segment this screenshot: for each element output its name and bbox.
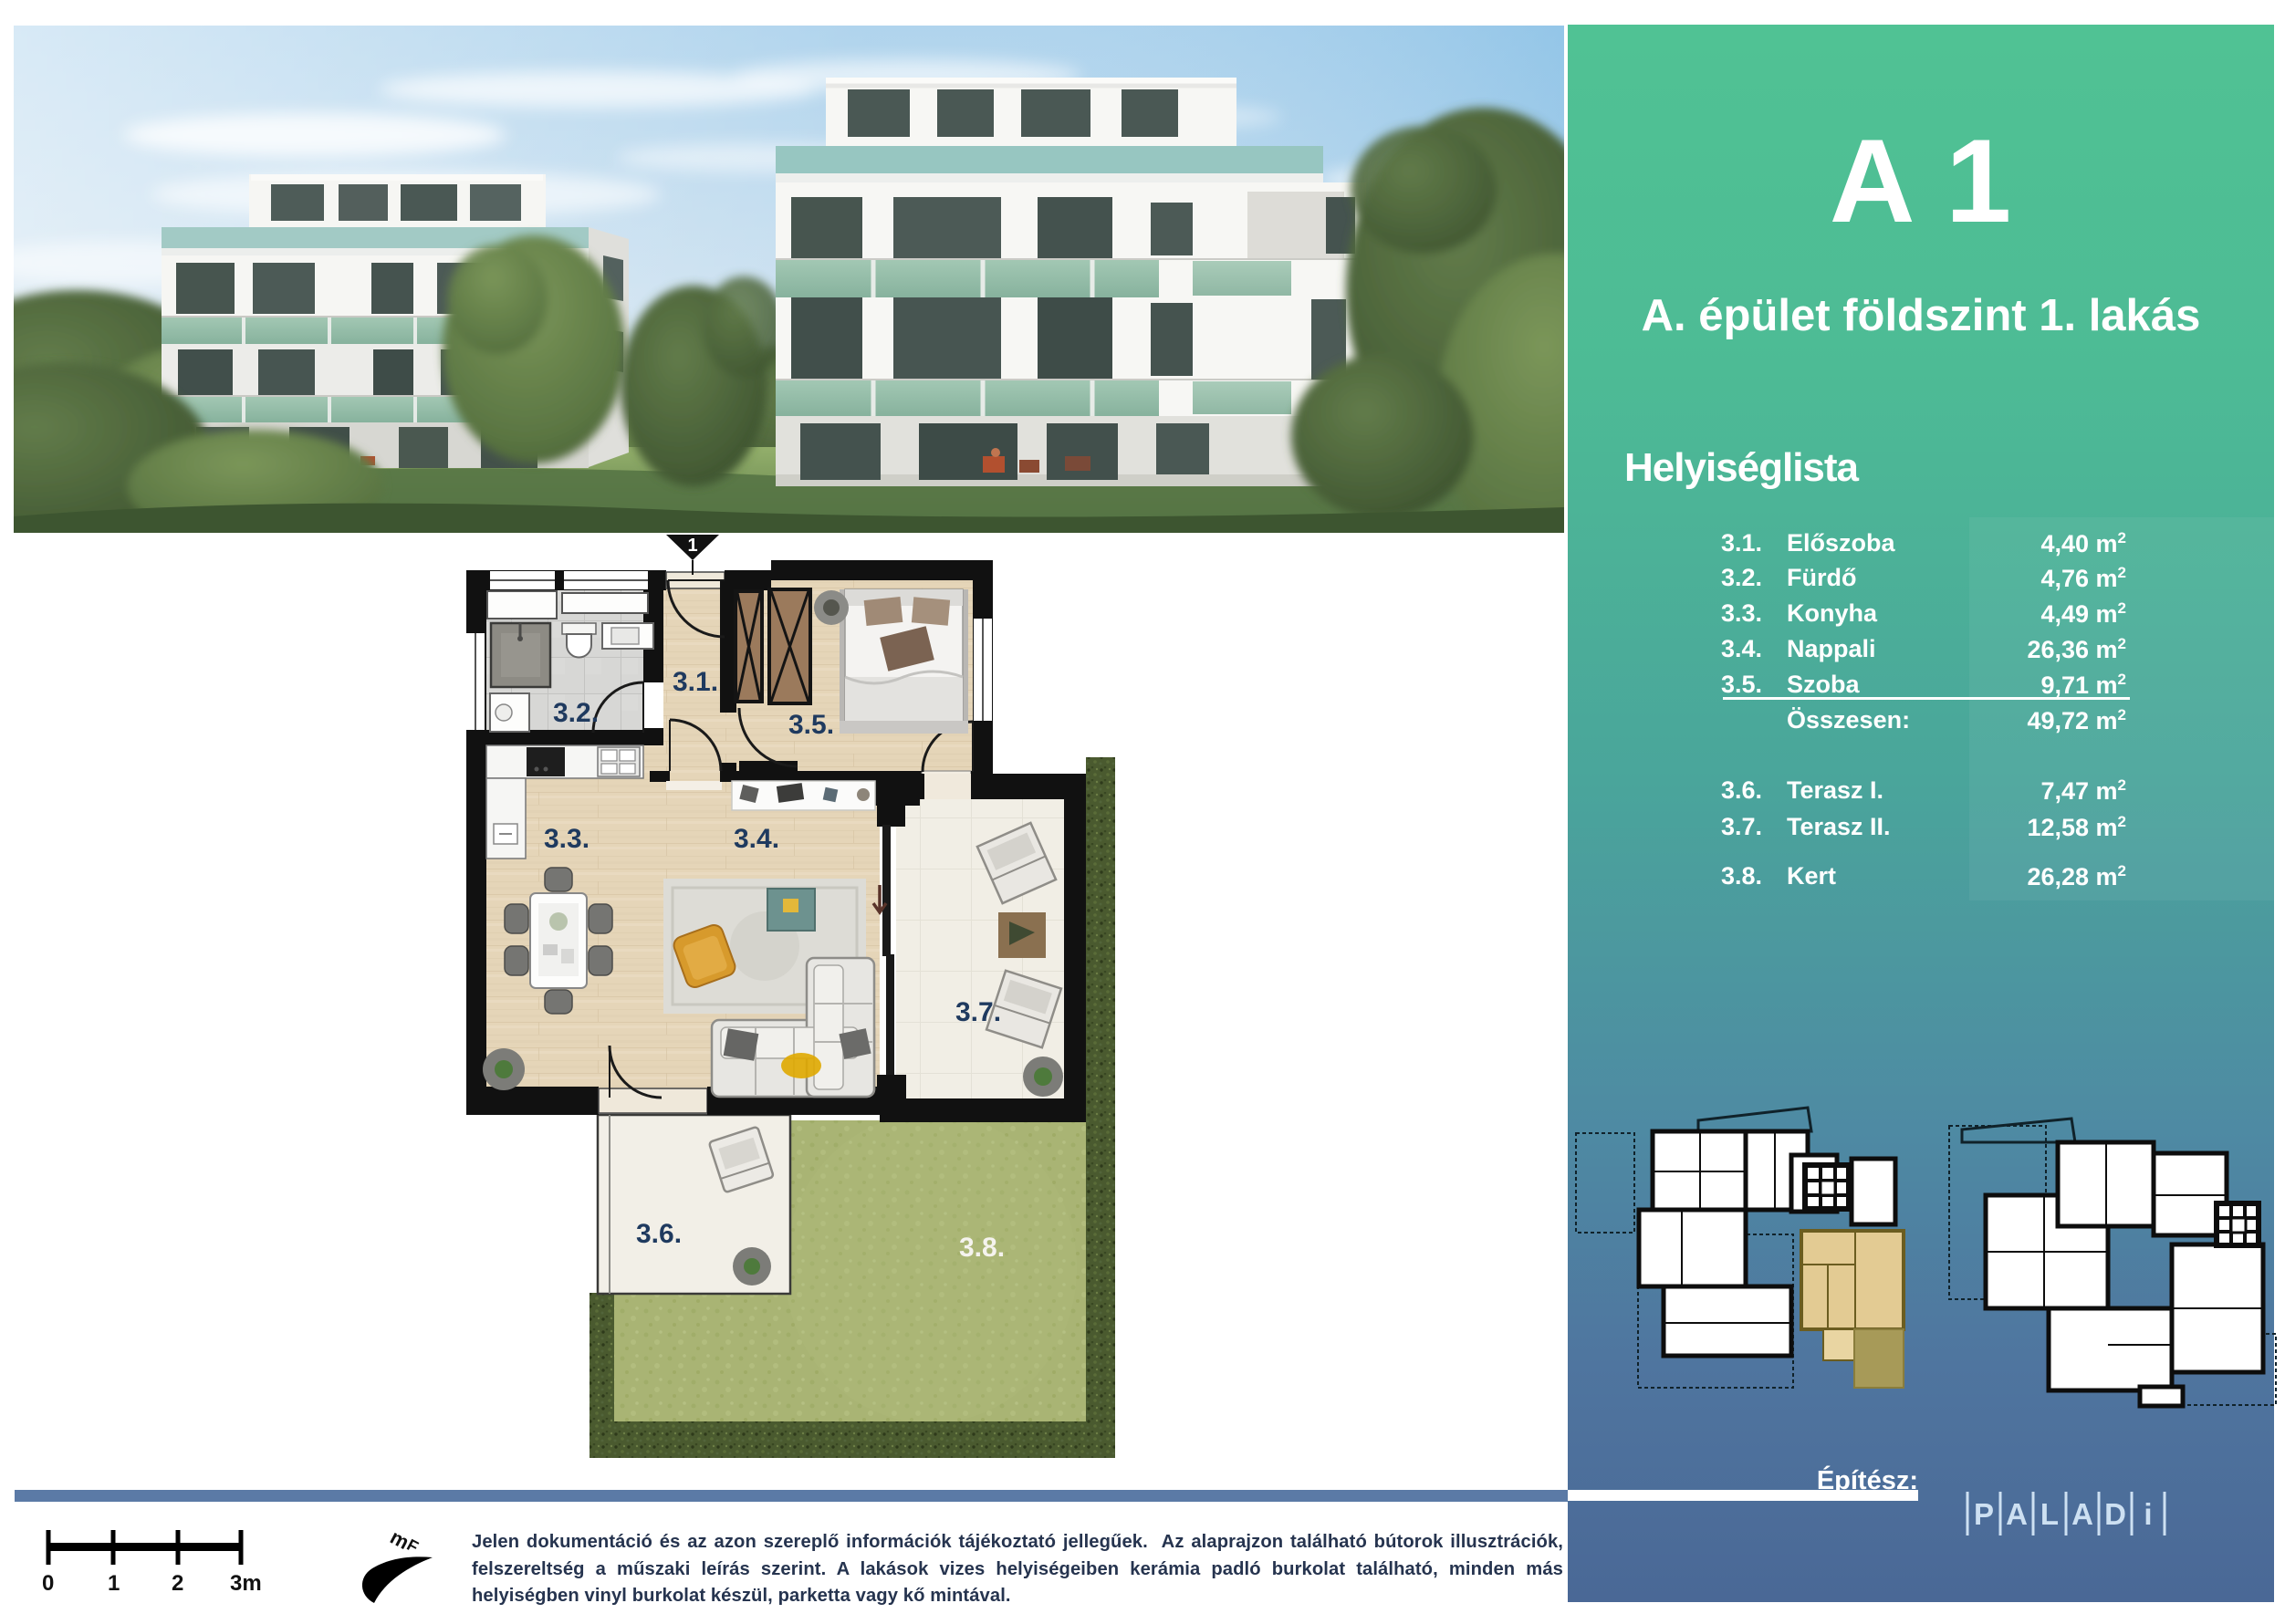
svg-text:A: A bbox=[2006, 1497, 2028, 1531]
svg-text:3.6.: 3.6. bbox=[636, 1219, 682, 1249]
svg-text:2: 2 bbox=[172, 1571, 183, 1596]
svg-text:3.1.: 3.1. bbox=[673, 667, 718, 697]
svg-text:3.7.: 3.7. bbox=[955, 997, 1001, 1027]
svg-text:D: D bbox=[2104, 1497, 2126, 1531]
svg-text:3m: 3m bbox=[230, 1571, 262, 1596]
svg-text:3.2.: 3.2. bbox=[553, 698, 599, 728]
svg-text:1: 1 bbox=[108, 1571, 120, 1596]
svg-text:A: A bbox=[2071, 1497, 2093, 1531]
svg-text:3.4.: 3.4. bbox=[734, 824, 779, 854]
svg-text:3.3.: 3.3. bbox=[544, 824, 590, 854]
svg-text:P: P bbox=[1974, 1497, 1994, 1531]
svg-text:L: L bbox=[2040, 1497, 2059, 1531]
svg-text:3.8.: 3.8. bbox=[959, 1233, 1005, 1263]
svg-text:i: i bbox=[2144, 1497, 2152, 1531]
svg-text:1: 1 bbox=[687, 536, 697, 556]
svg-text:0: 0 bbox=[42, 1571, 54, 1596]
svg-text:3.5.: 3.5. bbox=[788, 710, 834, 740]
